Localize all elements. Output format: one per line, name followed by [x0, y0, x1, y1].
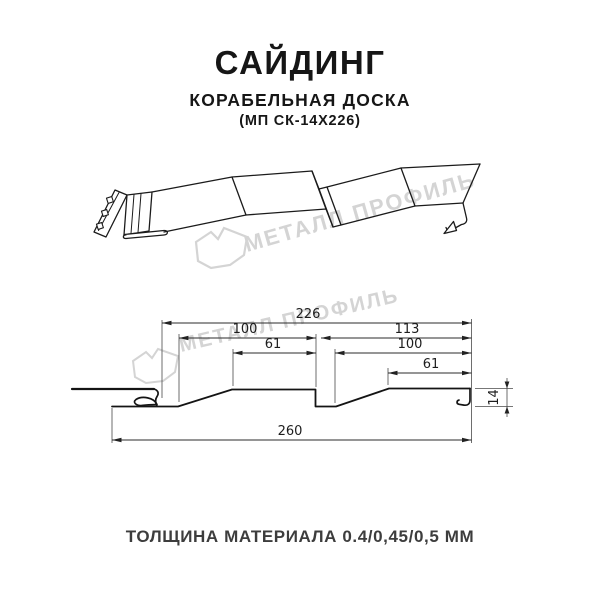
dim-label-260: 260 — [278, 424, 303, 439]
thickness-note: ТОЛЩИНА МАТЕРИАЛА 0.4/0,45/0,5 ММ — [0, 527, 600, 547]
dim-label-100-left: 100 — [233, 322, 258, 337]
dim-label-100-right: 100 — [398, 337, 423, 352]
dim-label-113: 113 — [395, 322, 420, 337]
section-profile-outline — [72, 389, 470, 407]
brand-logo-icon — [196, 228, 247, 268]
dim-label-14: 14 — [487, 389, 502, 406]
dim-label-61-right: 61 — [423, 357, 440, 372]
watermark-3d: МЕТАЛЛ ПРОФИЛЬ — [196, 167, 478, 268]
brand-logo-icon — [133, 349, 178, 383]
watermark-brand-text: МЕТАЛЛ ПРОФИЛЬ — [241, 167, 478, 257]
technical-drawing-canvas: МЕТАЛЛ ПРОФИЛЬ МЕТАЛЛ ПРОФИЛЬ — [0, 0, 600, 600]
product-drawing-page: САЙДИНГ КОРАБЕЛЬНАЯ ДОСКА (МП СК-14Х226)… — [0, 0, 600, 600]
dim-label-61-left: 61 — [265, 337, 282, 352]
watermark-brand-text: МЕТАЛЛ ПРОФИЛЬ — [177, 284, 401, 357]
watermark-section: МЕТАЛЛ ПРОФИЛЬ — [133, 284, 401, 383]
dim-label-226: 226 — [296, 307, 321, 322]
